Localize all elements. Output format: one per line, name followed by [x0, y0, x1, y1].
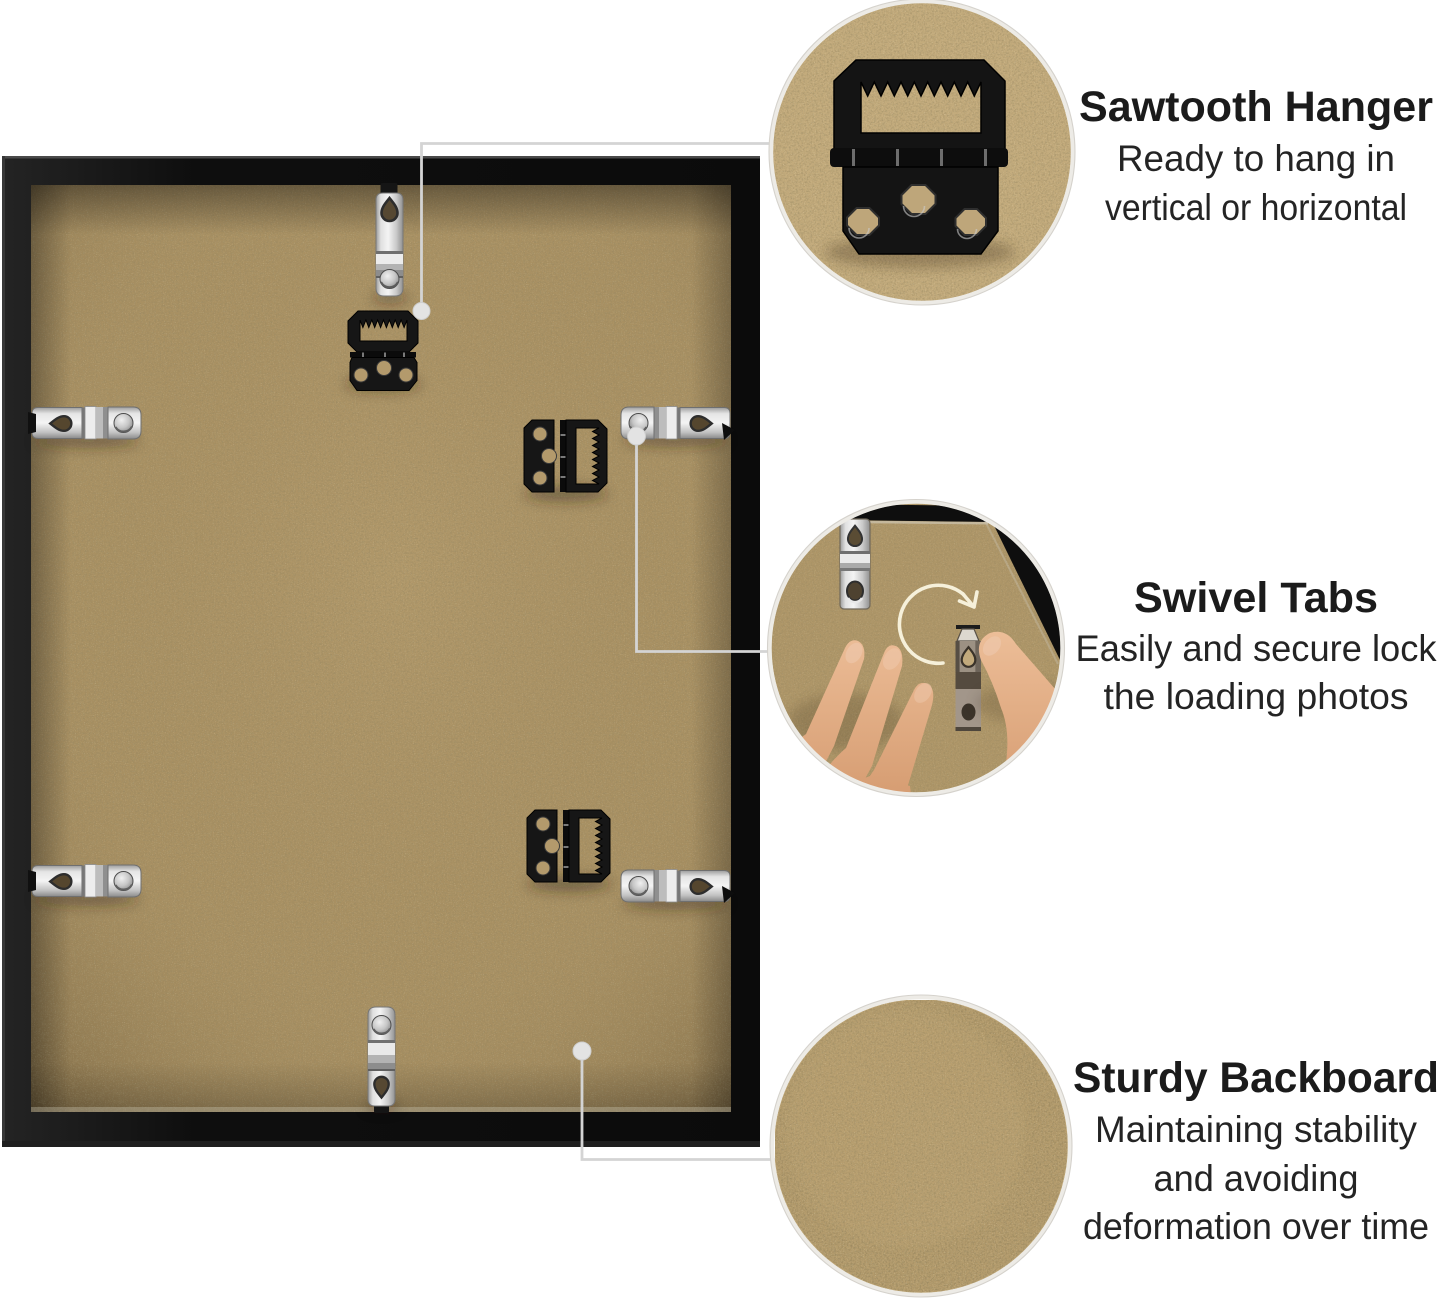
svg-text:Sawtooth Hanger: Sawtooth Hanger — [1079, 83, 1433, 131]
svg-text:vertical or horizontal: vertical or horizontal — [1105, 187, 1407, 228]
svg-text:the loading photos: the loading photos — [1104, 676, 1409, 717]
svg-text:Maintaining stability: Maintaining stability — [1095, 1109, 1417, 1150]
svg-text:and avoiding: and avoiding — [1154, 1158, 1359, 1199]
svg-text:Ready to hang in: Ready to hang in — [1117, 138, 1395, 179]
svg-text:deformation over time: deformation over time — [1083, 1206, 1429, 1247]
svg-text:Easily and secure lock: Easily and secure lock — [1076, 628, 1437, 669]
svg-text:Sturdy Backboard: Sturdy Backboard — [1073, 1054, 1439, 1102]
svg-text:Swivel Tabs: Swivel Tabs — [1134, 574, 1378, 622]
